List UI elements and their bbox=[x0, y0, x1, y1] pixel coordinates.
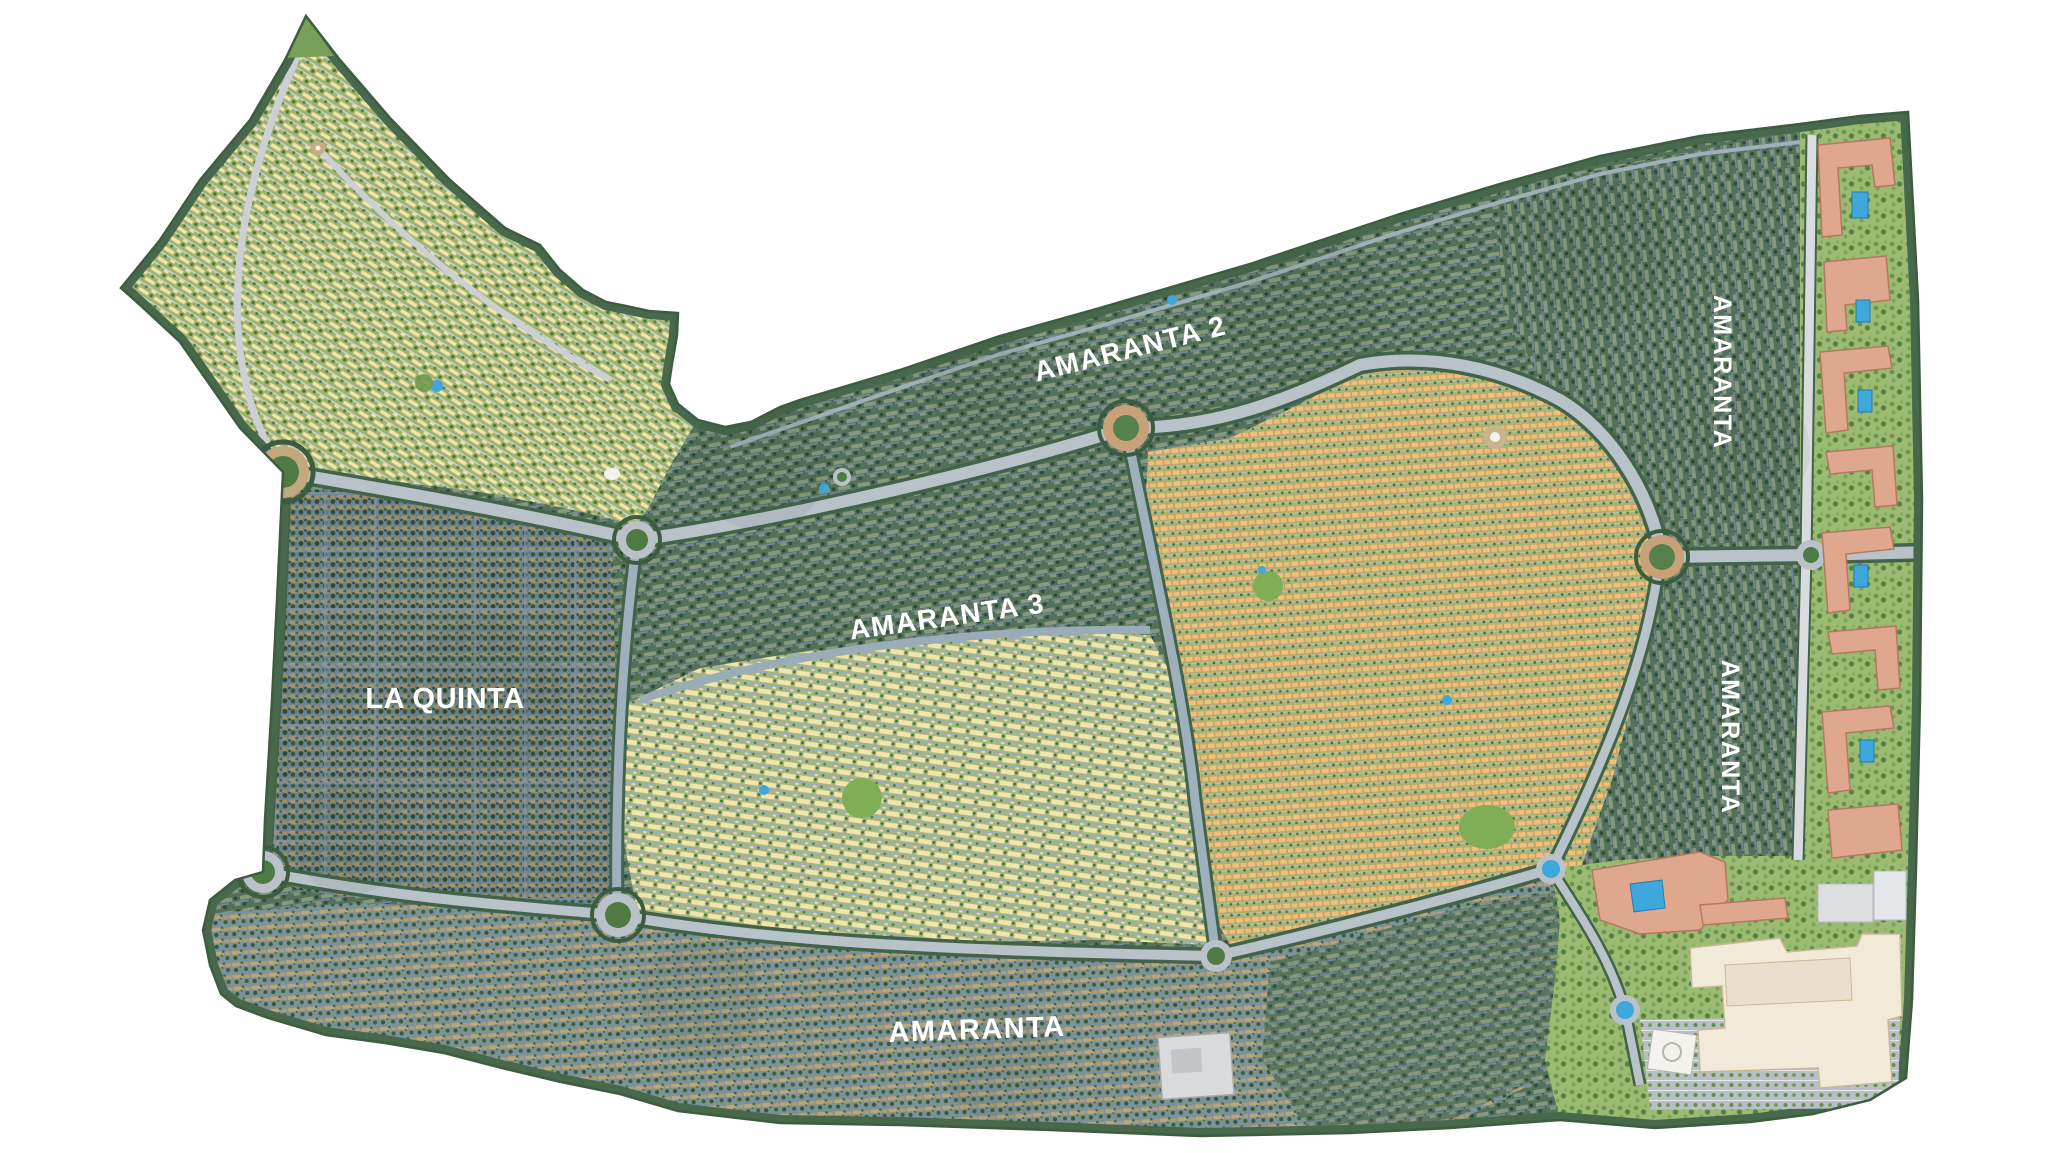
svg-text:AMARANTA: AMARANTA bbox=[1716, 660, 1744, 815]
svg-text:LA QUINTA: LA QUINTA bbox=[365, 683, 524, 715]
svg-text:AMARANTA: AMARANTA bbox=[1708, 295, 1736, 450]
svg-text:AMARANTA: AMARANTA bbox=[888, 1011, 1066, 1049]
